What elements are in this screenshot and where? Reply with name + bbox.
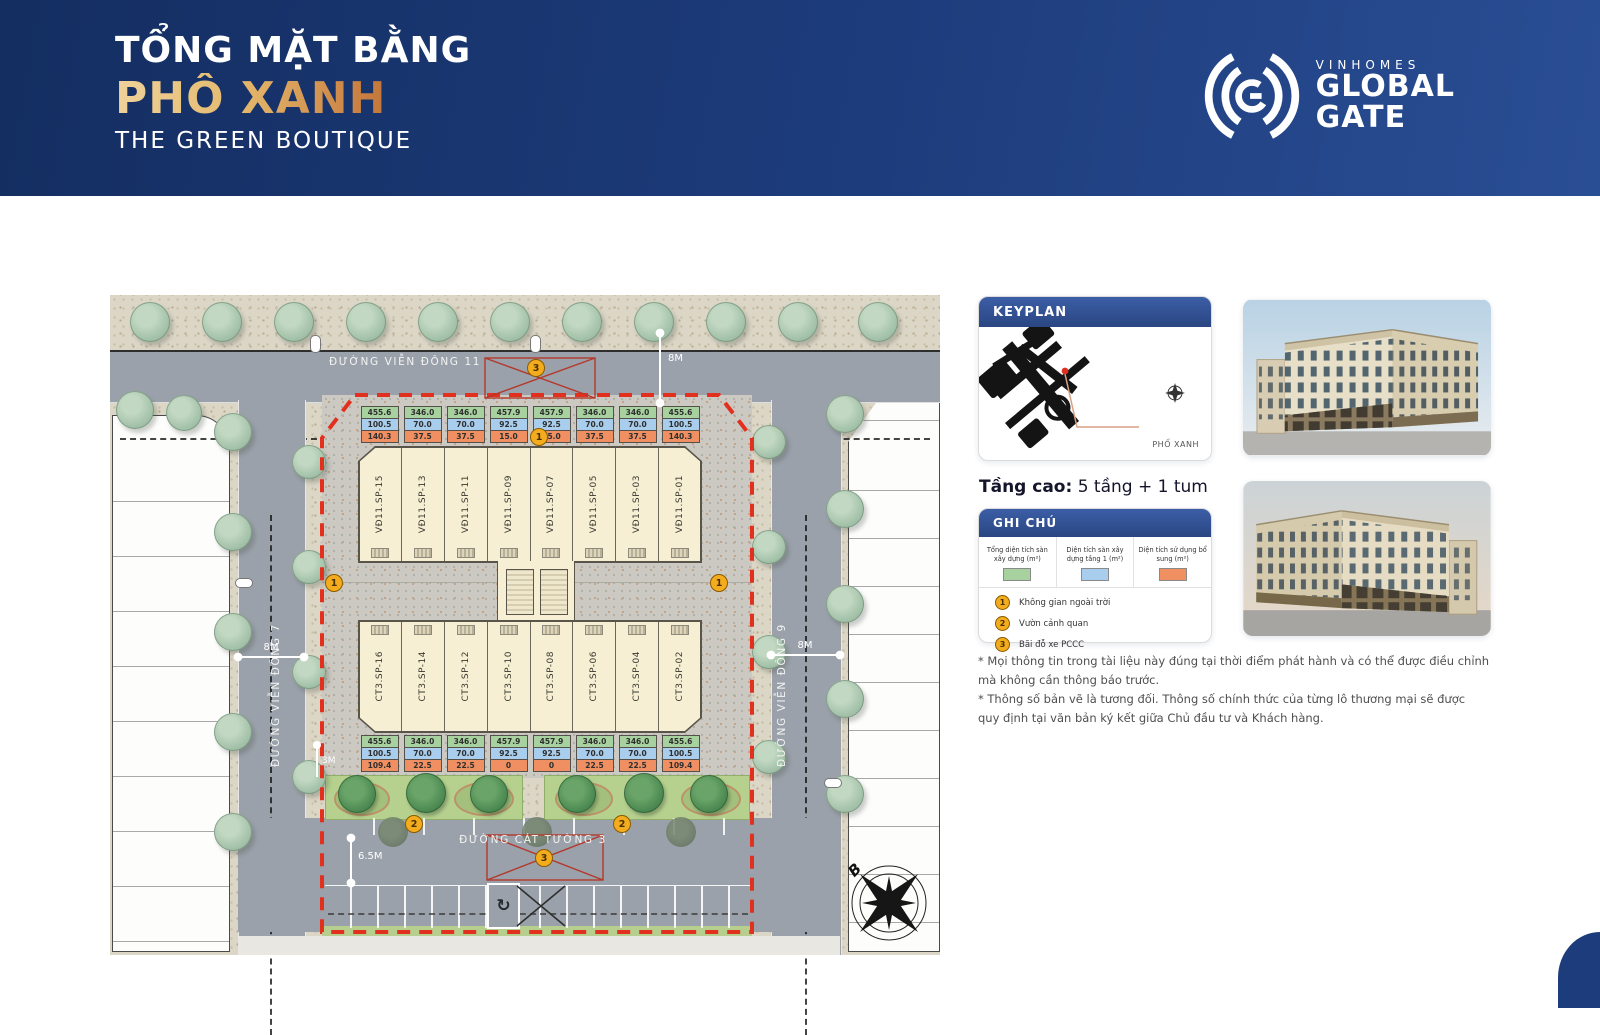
central-core [497,561,575,622]
tree-icon [826,395,864,433]
project-subtitle: THE GREEN BOUTIQUE [115,128,471,154]
outside-paving [238,936,840,955]
keyplan-location-label: PHỐ XANH [1152,440,1199,449]
disclaimer-line-1: * Mọi thông tin trong tài liệu này đúng … [978,652,1490,690]
areas-table: 455.6100.5140.3 [361,407,399,443]
tree-icon [418,302,458,342]
tree-icon [826,680,864,718]
garden-tree-icon [338,775,376,813]
tree-icon [214,713,252,751]
areas-table: 457.992.50 [533,736,571,772]
tree-icon [214,613,252,651]
header-banner: TỔNG MẶT BẰNG PHỐ XANH THE GREEN BOUTIQU… [0,0,1600,196]
dimension-left: 8M [248,642,294,653]
unit-ct3-sp-14: CT3.SP-14 [402,622,445,732]
bollard-marker [824,778,842,788]
marker-pccc-parking-top: 3 [527,359,545,377]
street-name-right: ĐƯỜNG VIỄN ĐÔNG 9 [776,595,788,795]
unit-vd11-sp-05: VĐ11.SP-05 [573,448,616,562]
areas-table: 457.992.515.0 [490,407,528,443]
unit-vd11-sp-09: VĐ11.SP-09 [488,448,531,562]
unit-ct3-sp-06: CT3.SP-06 [573,622,616,732]
unit-vd11-sp-11: VĐ11.SP-11 [445,448,488,562]
floors-label: Tầng cao: [979,477,1072,497]
vinhomes-global-gate-logo-icon [1204,48,1300,144]
areas-table: 346.070.022.5 [404,736,442,772]
legend-swatches: Tổng diện tích sàn xây dựng (m²) Diện tí… [979,537,1211,588]
garden-tree-icon [690,775,728,813]
keyplan-location-dot [1062,368,1069,375]
bollard-marker [310,335,321,353]
site-plan: ↻ VĐ11.SP-15 VĐ11.SP-13 VĐ11.SP-11 VĐ11.… [110,295,940,955]
swatch-blue [1081,568,1109,581]
tree-icon [562,302,602,342]
unit-ct3-sp-16: CT3.SP-16 [360,622,403,732]
tree-icon [202,302,242,342]
keyplan-card: KEYPLAN PHỐ XANH [978,296,1212,461]
tree-icon [634,302,674,342]
street-name-bottom: ĐƯỜNG CÁT TƯỜNG 3 [443,834,623,846]
areas-table: 346.070.037.5 [404,407,442,443]
legend-item-pccc: 3 Bãi đỗ xe PCCC [995,637,1211,652]
unit-vd11-sp-15: VĐ11.SP-15 [360,448,403,562]
floors-info: Tầng cao: 5 tầng + 1 tum [979,477,1208,497]
street-name-top: ĐƯỜNG VIỄN ĐÔNG 11 [285,356,525,368]
tree-icon [292,760,326,794]
areas-table: 455.6100.5109.4 [662,736,700,772]
building-render-photo-1 [1243,299,1491,456]
building-render-photo-2 [1243,481,1491,636]
adjacent-lot-west [112,415,230,952]
parking-tree-icon [666,817,696,847]
parking-dashed-line [328,913,748,915]
tree-icon [858,302,898,342]
legend-items: 1 Không gian ngoài trời 2 Vườn cảnh quan… [979,588,1211,652]
unit-vd11-sp-07: VĐ11.SP-07 [531,448,574,562]
areas-table: 455.6100.5140.3 [662,407,700,443]
disclaimer: * Mọi thông tin trong tài liệu này đúng … [978,652,1490,728]
parking-stalls [325,885,750,928]
keyplan-compass-icon [1165,383,1185,403]
marker-pccc-parking-bottom: 3 [535,849,553,867]
marker-garden-west: 2 [405,815,423,833]
building-row-north: VĐ11.SP-15 VĐ11.SP-13 VĐ11.SP-11 VĐ11.SP… [358,446,702,563]
swatch-orange [1159,568,1187,581]
dimension-bottom: 6.5M [358,851,383,862]
areas-table: 346.070.037.5 [576,407,614,443]
bollard-marker [235,578,253,588]
legend-swatch-extra: Diện tích sử dụng bổ sung (m²) [1134,537,1211,587]
areas-table: 346.070.022.5 [576,736,614,772]
tree-icon [778,302,818,342]
tree-icon [214,413,252,451]
garden-tree-icon [624,773,664,813]
tree-icon [346,302,386,342]
street-name-left: ĐƯỜNG VIỄN ĐÔNG 7 [270,595,282,795]
swatch-green [1003,568,1031,581]
unit-ct3-sp-10: CT3.SP-10 [488,622,531,732]
garden-tree-icon [558,775,596,813]
brand-logo: VINHOMES GLOBAL GATE [1204,48,1455,144]
tree-icon [706,302,746,342]
keyplan-title: KEYPLAN [979,297,1211,327]
dimension-setback: 3M [322,756,336,766]
dimension-top: 8M [668,353,683,364]
tree-icon [116,391,154,429]
unit-ct3-sp-12: CT3.SP-12 [445,622,488,732]
tree-icon [214,513,252,551]
parking-tree-icon [378,817,408,847]
project-name: PHỐ XANH [115,73,471,124]
tree-icon [752,530,786,564]
dimension-right: 8M [782,640,828,651]
marker-open-space-east: 1 [710,574,728,592]
areas-table: 455.6100.5109.4 [361,736,399,772]
keyplan-map: PHỐ XANH [979,327,1211,459]
legend-item-open-space: 1 Không gian ngoài trời [995,595,1211,610]
tree-icon [826,490,864,528]
tree-icon [292,445,326,479]
unit-vd11-sp-13: VĐ11.SP-13 [402,448,445,562]
page-title: TỔNG MẶT BẰNG [115,30,471,71]
unit-vd11-sp-01: VĐ11.SP-01 [659,448,701,562]
legend-swatch-floor1: Diện tích sàn xây dựng tầng 1 (m²) [1057,537,1135,587]
unit-ct3-sp-02: CT3.SP-02 [659,622,701,732]
legend-title: GHI CHÚ [979,509,1211,537]
unit-vd11-sp-03: VĐ11.SP-03 [616,448,659,562]
tree-icon [292,655,326,689]
title-block: TỔNG MẶT BẰNG PHỐ XANH THE GREEN BOUTIQU… [115,30,471,154]
legend-item-garden: 2 Vườn cảnh quan [995,616,1211,631]
tree-icon [274,302,314,342]
brand-text: VINHOMES GLOBAL GATE [1316,58,1455,133]
brand-global: GLOBAL [1316,72,1455,103]
building-row-south: CT3.SP-16 CT3.SP-14 CT3.SP-12 CT3.SP-10 … [358,620,702,733]
marker-open-space-center: 1 [530,428,548,446]
garden-tree-icon [406,773,446,813]
tree-icon [292,550,326,584]
garden-tree-icon [470,775,508,813]
bollard-marker [530,335,541,353]
areas-table: 457.992.50 [490,736,528,772]
keyplan-map-graphic [979,327,1209,455]
tree-icon [130,302,170,342]
areas-table: 346.070.037.5 [447,407,485,443]
ev-charging-icon: ↻ [496,896,510,916]
tree-icon [752,425,786,459]
tree-icon [166,395,202,431]
marker-garden-east: 2 [613,815,631,833]
areas-table: 346.070.022.5 [619,736,657,772]
road-centerline [805,515,807,1035]
tree-icon [826,585,864,623]
unit-ct3-sp-04: CT3.SP-04 [616,622,659,732]
tree-icon [490,302,530,342]
brand-gate: GATE [1316,103,1455,134]
floors-value: 5 tầng + 1 tum [1072,477,1208,497]
marker-open-space-west: 1 [325,574,343,592]
tree-icon [214,813,252,851]
legend-card: GHI CHÚ Tổng diện tích sàn xây dựng (m²)… [978,508,1212,643]
page: { "header": { "title_line1": "TỔNG MẶT B… [0,0,1600,1008]
areas-table: 346.070.022.5 [447,736,485,772]
page-corner-decoration [1558,932,1600,1008]
ev-charging-stall: ↻ [487,883,520,929]
south-area-tables: 455.6100.5109.4 346.070.022.5 346.070.02… [358,735,702,773]
legend-swatch-total: Tổng diện tích sàn xây dựng (m²) [979,537,1057,587]
areas-table: 346.070.037.5 [619,407,657,443]
disclaimer-line-2: * Thông số bản vẽ là tương đối. Thông số… [978,690,1490,728]
unit-ct3-sp-08: CT3.SP-08 [531,622,574,732]
